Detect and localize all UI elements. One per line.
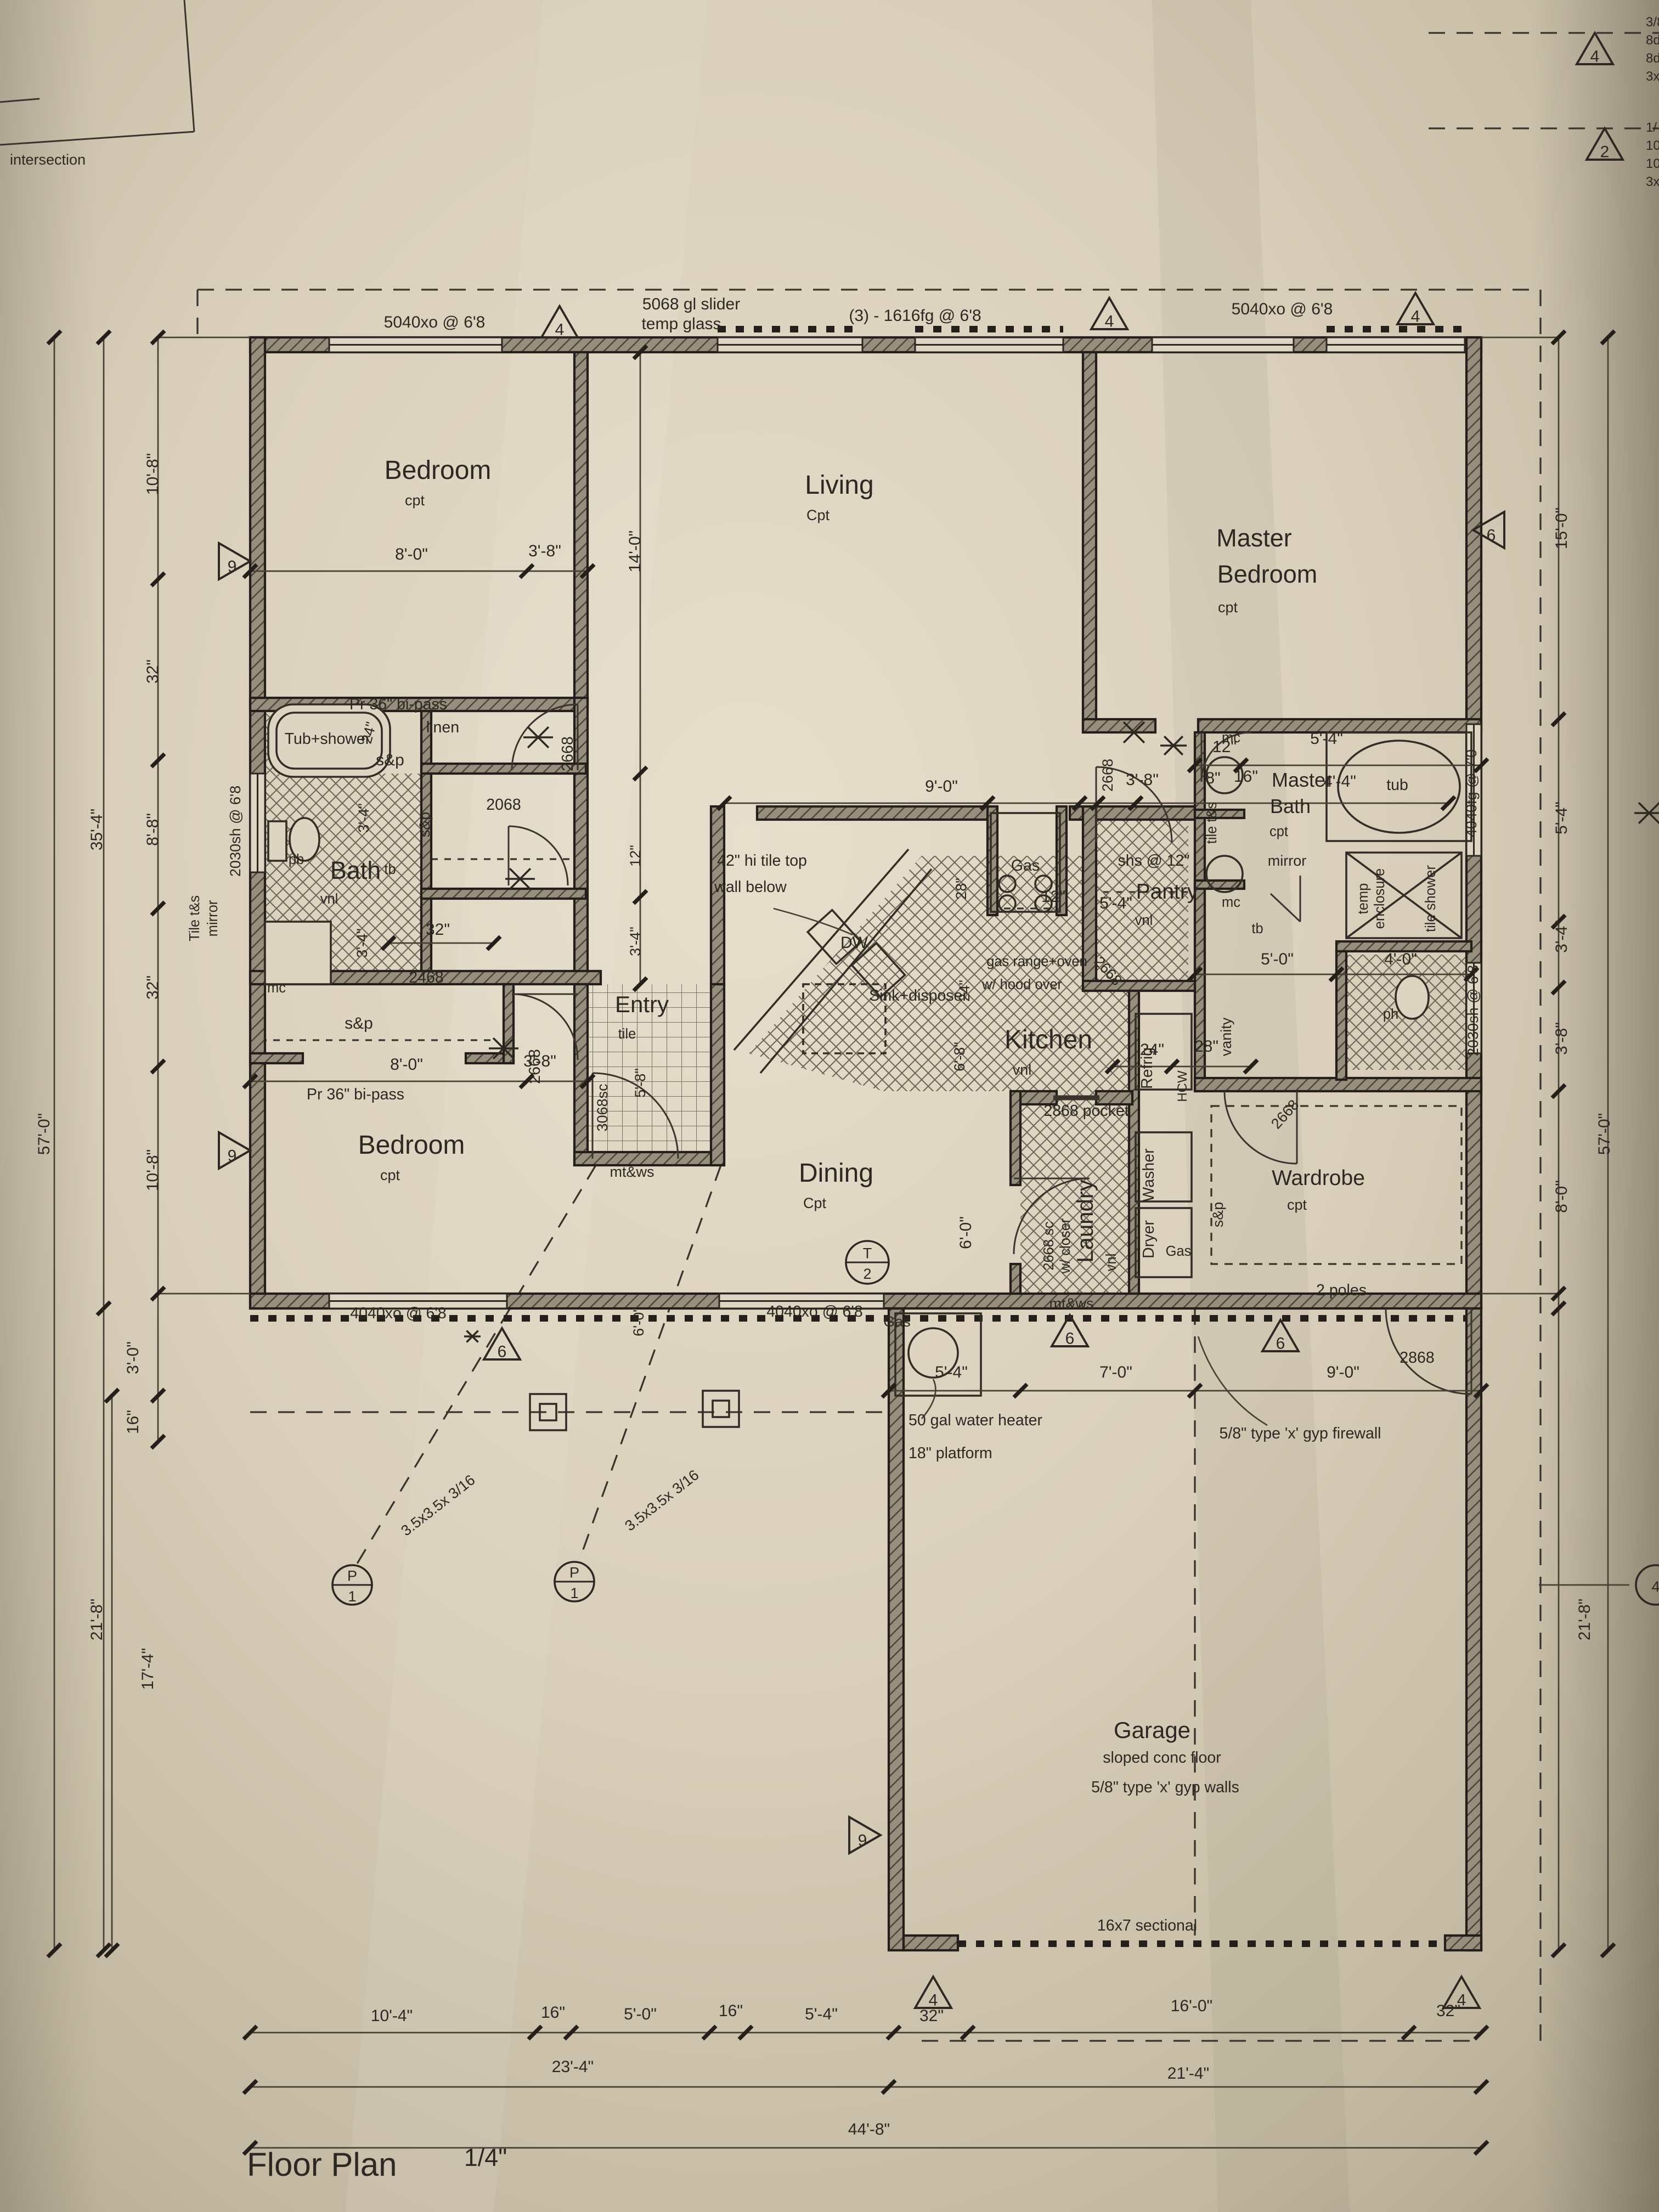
floor-plan-photo: 5040xo @ 6'85068 gl slidertemp glass(3) … <box>0 0 1659 2212</box>
fixture-label-sink: Sink+disposer <box>869 987 968 1005</box>
room-label-entry: Entry <box>615 991 669 1017</box>
window-label: 2030sh @ 6'8 <box>227 786 244 877</box>
dim-right: 8'-0" <box>1553 1180 1571 1213</box>
dim-bottom: 21'-4" <box>1167 2064 1209 2083</box>
window-label: 5040xo @ 6'8 <box>384 313 486 331</box>
fixture-label-refrigerator: Refrig <box>1138 1047 1156 1089</box>
dim-interior: 12" <box>1041 888 1065 906</box>
fixture-label: mc <box>1222 730 1240 746</box>
keynote-number: 4 <box>929 1991 938 2010</box>
schedule-fragment: 8d <box>1646 33 1659 48</box>
dim-left: 10'-8" <box>144 1149 162 1191</box>
keynote-number: 6 <box>498 1343 507 1361</box>
note-shower: enclosure <box>1372 868 1387 929</box>
door-label: 3068sc <box>594 1084 611 1131</box>
dim-interior: 8'-0" <box>395 545 428 563</box>
room-label-dining: Dining <box>799 1159 873 1188</box>
note-mtws: mt&ws <box>1049 1295 1094 1312</box>
window-label: temp glass <box>641 315 721 333</box>
dim-left: 8'-8" <box>144 813 162 846</box>
window-label: (3) - 1616fg @ 6'8 <box>849 307 981 325</box>
note-shower: temp <box>1356 883 1371 915</box>
room-finish: vnl <box>1135 913 1153 928</box>
dim-interior: 6'-0" <box>957 1216 975 1249</box>
dim-bottom: 16" <box>719 2002 743 2020</box>
schedule-fragment: 1/ <box>1646 120 1657 135</box>
room-label-living: Living <box>805 471 873 500</box>
dim-interior: 3'-8" <box>523 1052 556 1070</box>
floor-plan-svg: 5040xo @ 6'85068 gl slidertemp glass(3) … <box>0 0 1659 2212</box>
dim-bottom: 16'-0" <box>1171 1997 1212 2015</box>
note-water-heater: 50 gal water heater <box>909 1412 1042 1429</box>
room-label-master-bath: Master <box>1272 769 1332 791</box>
fixture-label: pb <box>289 852 304 867</box>
dim-bottom: 10'-4" <box>371 2007 413 2025</box>
door-label: w/ closer <box>1058 1218 1073 1274</box>
door-label: 2068 <box>486 796 521 814</box>
room-finish: cpt <box>380 1167 400 1183</box>
room-label-master-bedroom: Master <box>1216 524 1292 552</box>
door-label: 2868 pocket <box>1043 1102 1128 1120</box>
room-label-master-bath: Bath <box>1270 795 1311 817</box>
corner-note: intersection <box>10 151 86 168</box>
sheet-scale: 1/4" <box>464 2143 507 2171</box>
note: tile t&s <box>1204 802 1220 844</box>
note-tile-top: 42" hi tile top <box>717 852 807 870</box>
room-label-bath: Bath <box>330 856 381 884</box>
tag-text: 4 <box>1651 1578 1659 1595</box>
fixture-label-tub: tub <box>1386 776 1408 794</box>
tag-text: P <box>347 1568 357 1584</box>
dim-interior: 14'-0" <box>626 531 644 572</box>
room-finish: cpt <box>1269 824 1288 839</box>
fixture-label-vanity: vanity <box>1218 1017 1234 1056</box>
door-label: 2668 <box>559 736 577 771</box>
dim-interior: 3'-4" <box>354 928 370 958</box>
dim-interior: 3'-8" <box>528 542 561 560</box>
dim-right: 15'-0" <box>1553 507 1571 549</box>
dim-interior: 9'-0" <box>1327 1363 1359 1381</box>
door-label: 2668 <box>1099 759 1116 792</box>
fixture-label: mc <box>1222 895 1240 910</box>
dim-bottom: 16" <box>541 2004 565 2022</box>
dim-right: 3'-8" <box>1553 1022 1571 1055</box>
tag-text: 1 <box>570 1585 578 1601</box>
note-range: w/ hood over <box>981 977 1063 992</box>
closet-label: s&p <box>376 751 404 769</box>
tag-text: P <box>569 1565 579 1581</box>
dim-interior: 12" <box>627 845 644 867</box>
dim-bottom: 44'-8" <box>848 2120 890 2138</box>
note: Tile t&s <box>187 895 202 941</box>
keynote-number: 9 <box>228 558 237 576</box>
dim-left: 32" <box>144 975 162 1000</box>
fixture-label: mirror <box>1268 853 1306 869</box>
fixture-label-washer: Washer <box>1140 1148 1158 1202</box>
dim-interior: 5'-0" <box>1261 950 1294 968</box>
dim-interior: 4'-0" <box>1384 950 1417 968</box>
room-finish: tile <box>618 1026 636 1042</box>
note-water-heater: 18" platform <box>909 1444 992 1462</box>
window-label: 4040xo @ 6'8 <box>350 1305 446 1322</box>
dim-bottom: 5'-4" <box>805 2005 838 2023</box>
note: mirror <box>205 900 221 936</box>
room-finish: vnl <box>1104 1254 1119 1272</box>
room-finish: Cpt <box>806 507 830 523</box>
dim-left: 32" <box>144 659 162 684</box>
dim-left: 17'-4" <box>139 1648 157 1690</box>
dim-interior: 6'-8" <box>951 1042 968 1071</box>
note-garage: 5/8" type 'x' gyp walls <box>1091 1779 1239 1796</box>
dim-left: 57'-0" <box>35 1113 53 1155</box>
keynote-number: 2 <box>1600 143 1610 161</box>
fixture-label-dishwasher: DW <box>840 934 868 952</box>
keynote-number: 9 <box>858 1832 867 1850</box>
tag-P1: P1 <box>332 1565 372 1605</box>
note-range: gas range+oven <box>986 954 1087 969</box>
window-label: 5068 gl slider <box>642 295 740 313</box>
keynote-number: 9 <box>228 1147 237 1165</box>
note-mtws: mt&ws <box>610 1164 654 1180</box>
fixture-label: mc <box>267 980 286 996</box>
dim-left: 35'-4" <box>88 809 106 850</box>
fixture-label: ph <box>1383 1007 1398 1022</box>
dim-interior: 5'-8" <box>632 1068 648 1098</box>
dim-bottom: 5'-0" <box>624 2005 657 2023</box>
room-finish: vnl <box>1013 1062 1032 1078</box>
door-label: Pr 36" bi-pass <box>349 696 447 713</box>
keynote-number: 6 <box>1065 1330 1075 1348</box>
fixture-label-dryer: Dryer <box>1140 1220 1158 1259</box>
door-label-garage: 16x7 sectional <box>1097 1917 1197 1934</box>
schedule-fragment: 10 <box>1646 156 1659 171</box>
dim-interior: 3'-4" <box>356 803 372 833</box>
note-tile-top: wall below <box>714 878 787 896</box>
schedule-fragment: 8d <box>1646 51 1659 66</box>
dim-interior: 8" <box>1205 769 1220 787</box>
dim-interior: 9'-0" <box>925 777 958 795</box>
schedule-fragment: 10 <box>1646 138 1659 153</box>
window-label: 2030sh @ 6'8 <box>1465 965 1481 1056</box>
room-label-bedroom1: Bedroom <box>385 456 492 485</box>
closet-label: linen <box>426 719 459 736</box>
dim-left: 3'-0" <box>124 1341 142 1374</box>
dim-interior: 3'-8" <box>1126 771 1159 789</box>
dim-right: 21'-8" <box>1576 1599 1594 1640</box>
room-label-wardrobe: Wardrobe <box>1272 1166 1365 1190</box>
fixture-label-shower: tile shower <box>1423 865 1438 932</box>
dim-right: 57'-0" <box>1595 1113 1613 1155</box>
door-label: Pr 36" bi-pass <box>307 1086 404 1103</box>
fixture-label: Tub+shower <box>285 730 371 748</box>
dim-left: 21'-8" <box>88 1599 106 1640</box>
dim-right: 3'-4" <box>1553 920 1571 953</box>
dim-bottom: 32" <box>919 2007 944 2025</box>
dim-bottom: 23'-4" <box>552 2058 594 2076</box>
dim-interior: 28" <box>953 878 969 900</box>
note-garage: sloped conc floor <box>1103 1749 1221 1767</box>
door-label: 2468 <box>409 969 443 986</box>
dim-interior: 32" <box>426 921 450 939</box>
dim-interior: 5'-4" <box>1310 730 1343 748</box>
dim-interior: 24" <box>956 980 973 1002</box>
tag-text: 2 <box>863 1266 871 1282</box>
door-label: 2868 <box>1400 1349 1434 1367</box>
room-label-master-bedroom: Bedroom <box>1217 560 1318 588</box>
keynote-number: 4 <box>1590 48 1600 66</box>
schedule-fragment: 3x <box>1646 69 1659 84</box>
dim-interior: 7'-0" <box>1099 1363 1132 1381</box>
door-label: 2668 sc <box>1041 1221 1057 1271</box>
window-label: 4040xo @ 6'8 <box>766 1303 862 1321</box>
tag-text: T <box>863 1245 872 1262</box>
note-firewall: 5/8" type 'x' gyp firewall <box>1219 1425 1381 1442</box>
note-shelves: shs @ 12" <box>1118 852 1190 870</box>
keynote-number: 6 <box>1487 527 1496 545</box>
schedule-fragment: 3x <box>1646 174 1659 189</box>
fixture-label: HCW <box>1175 1070 1190 1102</box>
window-label: 5040xo @ 6'8 <box>1232 300 1333 318</box>
dim-interior: 8'-0" <box>390 1056 423 1074</box>
schedule-fragment: 3/8 <box>1646 15 1659 30</box>
fixture-label: Gas <box>1166 1244 1192 1259</box>
keynote-number: 4 <box>555 321 565 339</box>
keynote-number: 6 <box>1276 1335 1285 1353</box>
tag-P1: P1 <box>555 1562 594 1601</box>
closet-label: s&p <box>1210 1202 1226 1228</box>
room-finish: cpt <box>1218 599 1238 616</box>
master-toilet <box>1396 976 1429 1019</box>
dim-interior: 3'-4" <box>627 927 644 956</box>
window-label: 4040fg @ 7'0 <box>1463 749 1480 837</box>
note-poles: 2 poles <box>1316 1282 1367 1299</box>
dim-interior: 5'-4" <box>1099 894 1132 912</box>
room-finish: Cpt <box>803 1195 827 1211</box>
keynote-number: 4 <box>1411 308 1420 326</box>
room-label-pantry: Pantry <box>1136 880 1198 904</box>
keynote-number: 4 <box>1457 1991 1466 2010</box>
room-finish: cpt <box>1287 1197 1307 1213</box>
room-finish: vnl <box>320 891 338 907</box>
dim-interior: 28" <box>1194 1037 1218 1056</box>
sheet-title: Floor Plan <box>247 2146 397 2183</box>
room-label-bedroom2: Bedroom <box>358 1131 465 1160</box>
closet-label: s&p <box>345 1014 373 1032</box>
dim-interior: 16" <box>1234 768 1258 786</box>
room-label-kitchen: Kitchen <box>1005 1025 1092 1054</box>
tag-text: 1 <box>348 1588 356 1605</box>
fixture-label: tb <box>384 862 396 877</box>
room-label-garage: Garage <box>1114 1717 1190 1743</box>
keynote-number: 4 <box>1105 313 1114 331</box>
fixture-label: tb <box>1251 921 1263 936</box>
room-finish: cpt <box>405 492 425 509</box>
closet-label: s&p <box>416 812 433 838</box>
fixture-label: Gas <box>883 1313 911 1330</box>
dim-left: 16" <box>124 1410 142 1434</box>
fixture-label-range: Gas <box>1011 857 1040 874</box>
dim-interior: 6'-0" <box>630 1307 647 1336</box>
dim-left: 10'-8" <box>144 453 162 495</box>
dim-interior: 5'-4" <box>935 1363 968 1381</box>
tag-T2: T2 <box>846 1241 889 1284</box>
room-label-laundry: Laundry <box>1072 1180 1098 1263</box>
dim-right: 5'-4" <box>1553 802 1571 834</box>
